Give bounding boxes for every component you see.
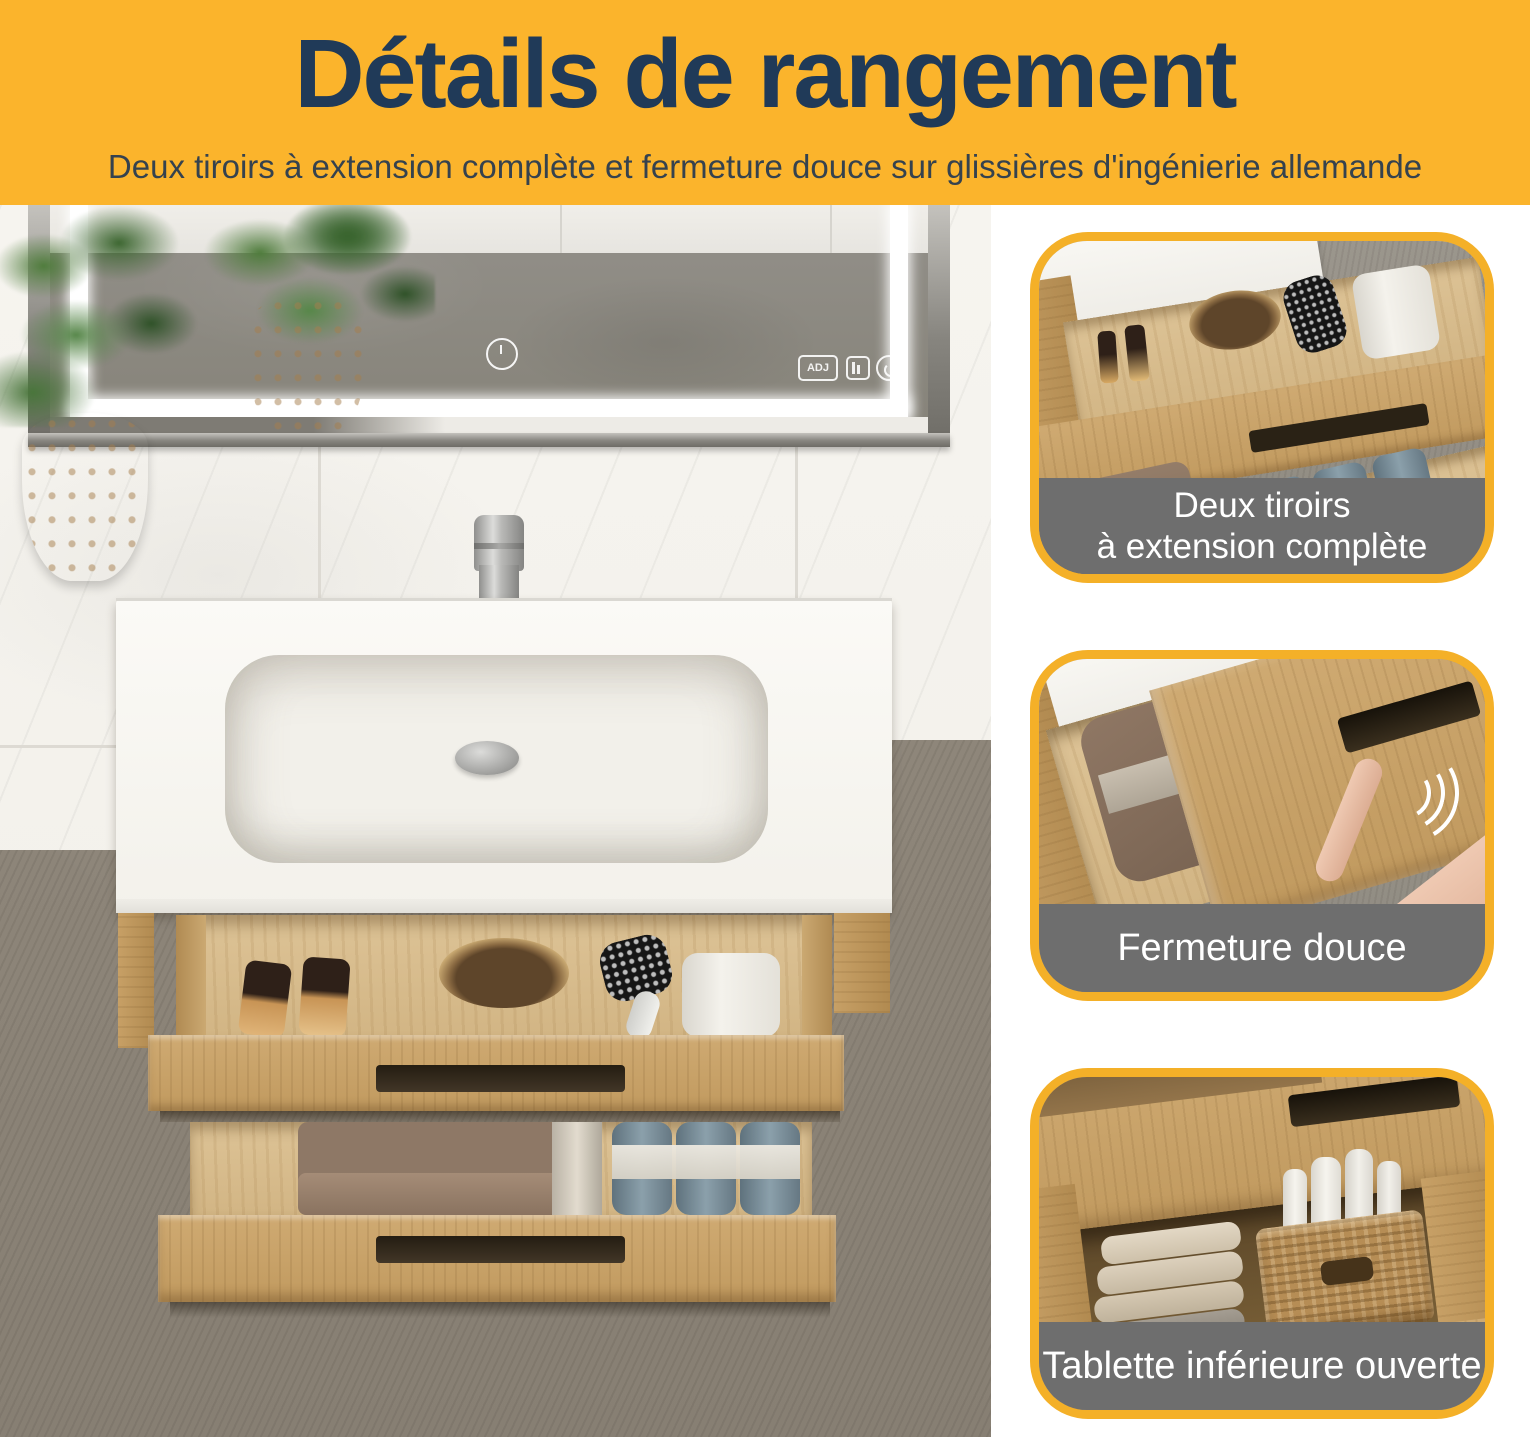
- callout-card-shelf: Tablette inférieure ouverte: [1030, 1068, 1494, 1419]
- page-subtitle: Deux tiroirs à extension complète et fer…: [0, 148, 1530, 186]
- mirror-led-strip-right: [890, 205, 908, 417]
- callout-photo-softclose: Fermeture douce: [1039, 659, 1485, 992]
- plant-foliage: [0, 205, 205, 427]
- page-title: Détails de rangement: [0, 18, 1530, 130]
- faucet-handle-gap: [474, 543, 524, 549]
- wooden-bowl: [439, 938, 569, 1008]
- caption-line: Fermeture douce: [1039, 926, 1485, 971]
- product-infographic: Détails de rangement Deux tiroirs à exte…: [0, 0, 1530, 1437]
- plant-vase: [22, 413, 148, 581]
- sink-drain: [455, 741, 519, 775]
- caption-line: Deux tiroirs: [1039, 485, 1485, 526]
- cabinet-side-right: [834, 913, 890, 1013]
- caption-bar: Deux tiroirs à extension complète: [1039, 478, 1485, 574]
- brightness-icon: [846, 356, 870, 380]
- adj-icon: ADJ: [798, 355, 838, 381]
- callout-card-softclose: Fermeture douce: [1030, 650, 1494, 1001]
- plant-vase: [248, 295, 366, 445]
- caption-line: à extension complète: [1039, 526, 1485, 567]
- drawer1-handle: [376, 1065, 625, 1092]
- caption-bar: Fermeture douce: [1039, 904, 1485, 992]
- power-icon-bar: [500, 345, 502, 354]
- callout-photo-shelf: Tablette inférieure ouverte: [1039, 1077, 1485, 1410]
- drawer-gap-shadow: [160, 1111, 840, 1122]
- cabinet-bottom-shadow: [170, 1302, 830, 1318]
- drawer1-wall-left: [176, 915, 206, 1037]
- countertop-front-edge: [116, 899, 892, 913]
- countertop-back-edge: [116, 598, 892, 601]
- caption-bar: Tablette inférieure ouverte: [1039, 1322, 1485, 1410]
- power-icon: [486, 338, 518, 370]
- cosmetic-bottle: [298, 956, 350, 1037]
- defog-swirl: [884, 363, 898, 377]
- card-bottle: [1097, 330, 1119, 383]
- defog-icon: [876, 355, 902, 381]
- cosmetic-bottle: [238, 959, 293, 1038]
- mirror-reflection-tile-joint: [560, 205, 562, 253]
- brightness-bar: [852, 362, 855, 374]
- drawer1-wall-right: [802, 915, 832, 1037]
- callout-card-drawers: Deux tiroirs à extension complète: [1030, 232, 1494, 583]
- drawer2-handle: [376, 1236, 625, 1263]
- brown-towel-lower: [298, 1173, 560, 1215]
- rolled-towel-bands: [612, 1145, 800, 1179]
- main-photo: ADJ: [0, 205, 991, 1437]
- mirror-frame-bottom: [28, 433, 950, 447]
- cabinet-side-left: [118, 913, 154, 1048]
- mirror-frame-right: [928, 205, 950, 447]
- mirror-reflection-tile-joint: [830, 205, 832, 253]
- caption-line: Tablette inférieure ouverte: [1039, 1344, 1485, 1389]
- towel-strap: [552, 1122, 602, 1215]
- card-canister: [1351, 263, 1441, 360]
- callout-photo-drawers: Deux tiroirs à extension complète: [1039, 241, 1485, 574]
- brightness-bar: [857, 365, 860, 374]
- white-canister: [682, 953, 780, 1037]
